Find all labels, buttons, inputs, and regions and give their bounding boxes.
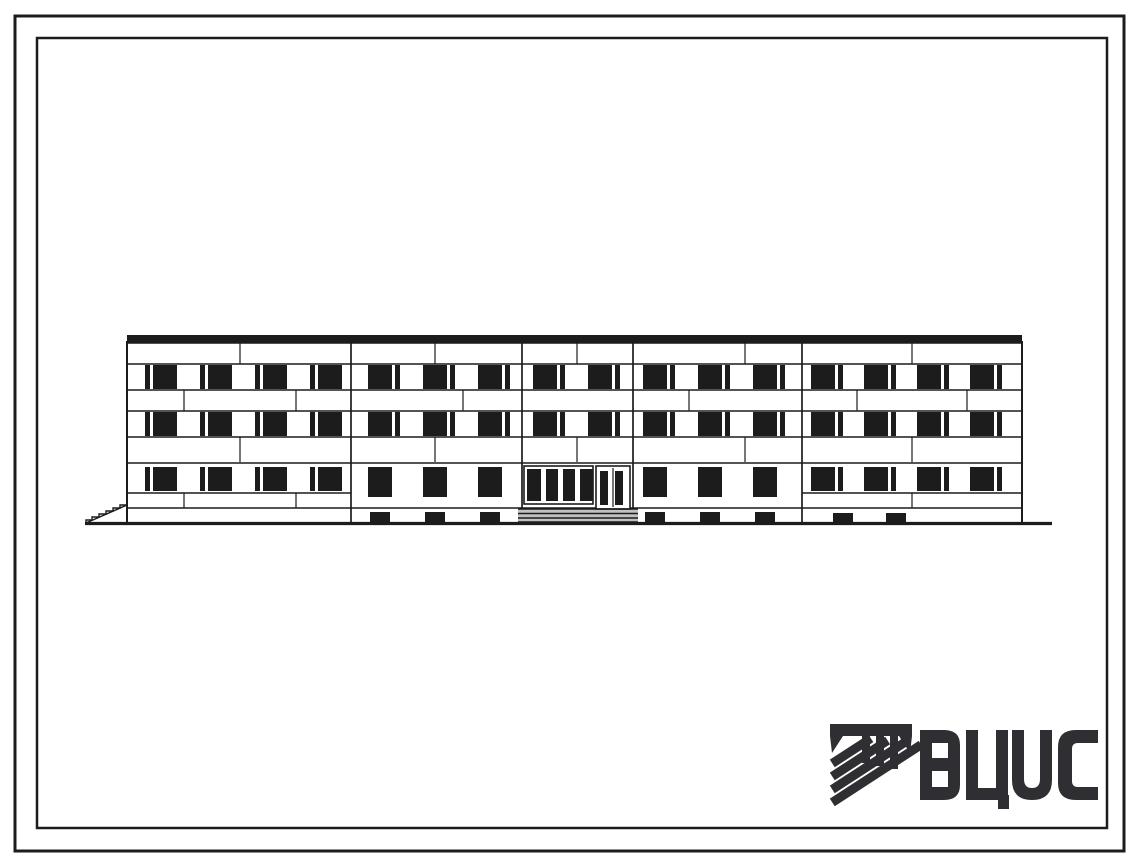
- window: [753, 365, 777, 389]
- emblem-left-flare: [830, 736, 843, 753]
- emblem-top-bar: [830, 724, 912, 736]
- window: [811, 365, 835, 389]
- window: [200, 467, 205, 491]
- window: [263, 365, 287, 389]
- window: [423, 467, 447, 497]
- window: [970, 412, 994, 436]
- window: [423, 365, 447, 389]
- window: [753, 412, 777, 436]
- window: [423, 412, 447, 436]
- window: [970, 467, 994, 491]
- window: [395, 365, 400, 389]
- basement-window: [833, 513, 853, 523]
- window: [643, 467, 667, 497]
- window: [997, 467, 1002, 491]
- logo-letter-i: [1012, 730, 1052, 800]
- window: [944, 412, 949, 436]
- window: [255, 412, 260, 436]
- window: [200, 412, 205, 436]
- window: [263, 412, 287, 436]
- logo-letter-v: [920, 730, 960, 800]
- window: [997, 412, 1002, 436]
- window: [864, 365, 888, 389]
- window: [395, 412, 400, 436]
- window: [615, 412, 620, 436]
- window: [478, 467, 502, 497]
- window: [145, 365, 150, 389]
- window: [153, 365, 177, 389]
- logo-letter-ts: [966, 730, 1009, 809]
- window: [780, 412, 785, 436]
- drawing-sheet: [0, 0, 1134, 863]
- window: [838, 467, 843, 491]
- window: [944, 365, 949, 389]
- window: [310, 365, 315, 389]
- window: [588, 412, 612, 436]
- window: [263, 467, 287, 491]
- window: [368, 467, 392, 497]
- window: [864, 467, 888, 491]
- entrance-glazing-pane: [546, 469, 558, 501]
- window: [533, 365, 557, 389]
- window: [864, 412, 888, 436]
- window: [725, 365, 730, 389]
- window: [698, 412, 722, 436]
- window: [643, 412, 667, 436]
- window: [318, 365, 342, 389]
- basement-window: [480, 512, 500, 523]
- window: [643, 365, 667, 389]
- building-elevation: [85, 335, 1052, 525]
- entrance: [518, 466, 638, 525]
- window: [145, 412, 150, 436]
- window: [255, 467, 260, 491]
- window: [970, 365, 994, 389]
- outer-frame: [15, 16, 1124, 851]
- window: [560, 365, 565, 389]
- window: [255, 365, 260, 389]
- window: [153, 467, 177, 491]
- window: [200, 365, 205, 389]
- window: [450, 412, 455, 436]
- window: [588, 365, 612, 389]
- window: [917, 467, 941, 491]
- window: [318, 412, 342, 436]
- basement-window: [886, 513, 906, 523]
- basement-window: [425, 512, 445, 523]
- window: [838, 365, 843, 389]
- window: [505, 365, 510, 389]
- window: [450, 365, 455, 389]
- window: [917, 412, 941, 436]
- window: [533, 412, 557, 436]
- window: [838, 412, 843, 436]
- entrance-glazing-pane: [580, 469, 593, 501]
- window: [670, 365, 675, 389]
- door-pane: [600, 471, 608, 505]
- window: [780, 365, 785, 389]
- window: [318, 467, 342, 491]
- basement-window: [755, 512, 775, 523]
- window: [310, 467, 315, 491]
- logo-emblem-icon: [830, 724, 924, 806]
- window: [997, 365, 1002, 389]
- basement-window: [700, 512, 720, 523]
- window: [478, 365, 502, 389]
- window: [725, 412, 730, 436]
- elevation-drawing: [0, 0, 1134, 863]
- basement-window: [370, 512, 390, 523]
- entrance-glazing-pane: [563, 469, 575, 501]
- door-pane: [615, 471, 623, 505]
- window: [153, 412, 177, 436]
- window: [891, 412, 896, 436]
- window: [753, 467, 777, 497]
- vcis-logo: [830, 724, 1098, 809]
- window: [145, 467, 150, 491]
- entrance-glazing-pane: [527, 469, 541, 501]
- window: [505, 412, 510, 436]
- window: [208, 467, 232, 491]
- window: [670, 412, 675, 436]
- window: [208, 365, 232, 389]
- window: [615, 365, 620, 389]
- window: [891, 365, 896, 389]
- window: [698, 467, 722, 497]
- window: [917, 365, 941, 389]
- window: [208, 412, 232, 436]
- logo-letter-s: [1058, 730, 1098, 800]
- window: [891, 467, 896, 491]
- basement-window: [645, 512, 665, 523]
- window: [811, 467, 835, 491]
- window: [811, 412, 835, 436]
- window: [368, 412, 392, 436]
- window: [310, 412, 315, 436]
- window: [698, 365, 722, 389]
- logo-text: [920, 730, 1098, 809]
- window: [478, 412, 502, 436]
- window: [560, 412, 565, 436]
- window: [944, 467, 949, 491]
- window: [368, 365, 392, 389]
